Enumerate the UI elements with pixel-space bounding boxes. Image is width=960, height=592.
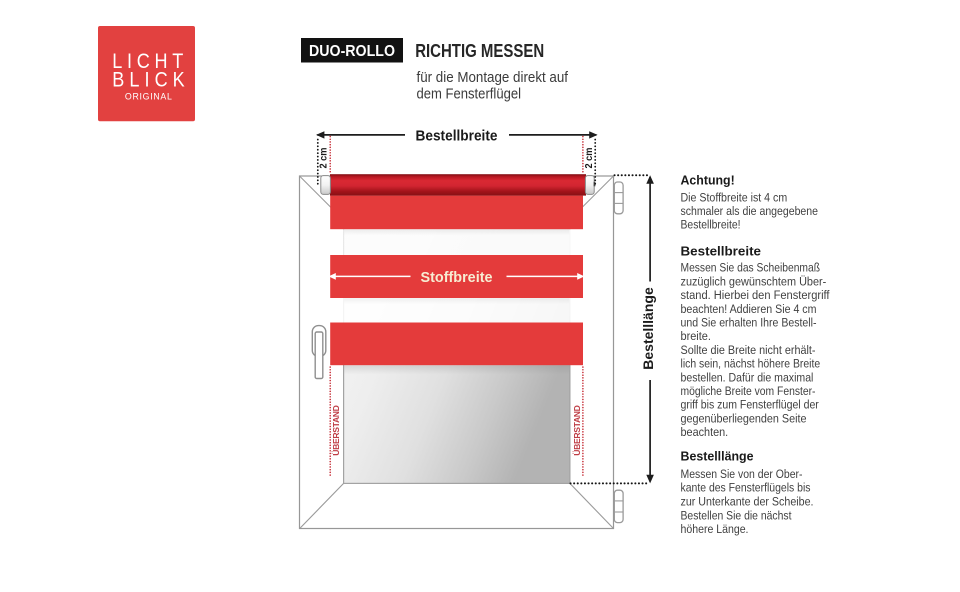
svg-text:BLICK: BLICK xyxy=(112,68,185,92)
svg-text:Die Stoffbreite ist 4 cm: Die Stoffbreite ist 4 cm xyxy=(681,190,788,204)
svg-text:beachten.: beachten. xyxy=(681,425,729,439)
svg-text:Stoffbreite: Stoffbreite xyxy=(421,269,493,286)
svg-text:Sollte die Breite nicht erhält: Sollte die Breite nicht erhält- xyxy=(681,343,816,357)
svg-text:2 cm: 2 cm xyxy=(584,147,595,168)
svg-text:DUO-ROLLO: DUO-ROLLO xyxy=(309,43,395,60)
svg-text:ORIGINAL: ORIGINAL xyxy=(125,92,172,102)
svg-text:dem Fensterflügel: dem Fensterflügel xyxy=(417,86,522,103)
svg-text:Bestellen Sie die nächst: Bestellen Sie die nächst xyxy=(681,508,793,522)
svg-text:ÜBERSTAND: ÜBERSTAND xyxy=(331,405,341,456)
svg-text:gegenüberliegenden Seite: gegenüberliegenden Seite xyxy=(681,411,807,425)
svg-text:griff bis zum Fensterflügel de: griff bis zum Fensterflügel der xyxy=(681,398,819,412)
svg-text:Messen Sie das Scheibenmaß: Messen Sie das Scheibenmaß xyxy=(681,261,821,275)
svg-text:Messen Sie von der Ober-: Messen Sie von der Ober- xyxy=(681,467,803,481)
svg-text:Bestellbreite: Bestellbreite xyxy=(416,127,498,144)
svg-text:zuzüglich gewünschtem Über-: zuzüglich gewünschtem Über- xyxy=(681,274,827,288)
svg-text:lich sein, nächst höhere Breit: lich sein, nächst höhere Breite xyxy=(681,357,821,371)
svg-text:kante des Fensterflügels bis: kante des Fensterflügels bis xyxy=(681,481,811,495)
svg-text:bestellen. Dafür die maximal: bestellen. Dafür die maximal xyxy=(681,370,814,384)
svg-text:für die Montage direkt auf: für die Montage direkt auf xyxy=(417,69,569,86)
svg-text:Bestellbreite!: Bestellbreite! xyxy=(681,218,741,232)
svg-text:stand. Hierbei den Fenstergrif: stand. Hierbei den Fenstergriff xyxy=(681,288,831,302)
svg-text:Bestelllänge: Bestelllänge xyxy=(681,448,754,463)
svg-text:Bestelllänge: Bestelllänge xyxy=(640,287,656,370)
svg-text:2 cm: 2 cm xyxy=(319,147,330,168)
svg-text:höhere Länge.: höhere Länge. xyxy=(681,522,749,536)
svg-text:RICHTIG MESSEN: RICHTIG MESSEN xyxy=(415,41,544,61)
svg-text:Bestellbreite: Bestellbreite xyxy=(681,244,762,259)
svg-text:und Sie erhalten Ihre Bestell-: und Sie erhalten Ihre Bestell- xyxy=(681,316,817,330)
svg-text:breite.: breite. xyxy=(681,329,711,343)
svg-text:schmaler als die angegebene: schmaler als die angegebene xyxy=(681,204,819,218)
svg-text:beachten! Addieren Sie 4 cm: beachten! Addieren Sie 4 cm xyxy=(681,302,817,316)
svg-text:mögliche Breite vom Fenster-: mögliche Breite vom Fenster- xyxy=(681,384,816,398)
svg-text:zur Unterkante der Scheibe.: zur Unterkante der Scheibe. xyxy=(681,494,814,508)
svg-text:Achtung!: Achtung! xyxy=(681,173,735,188)
svg-text:ÜBERSTAND: ÜBERSTAND xyxy=(572,405,582,456)
